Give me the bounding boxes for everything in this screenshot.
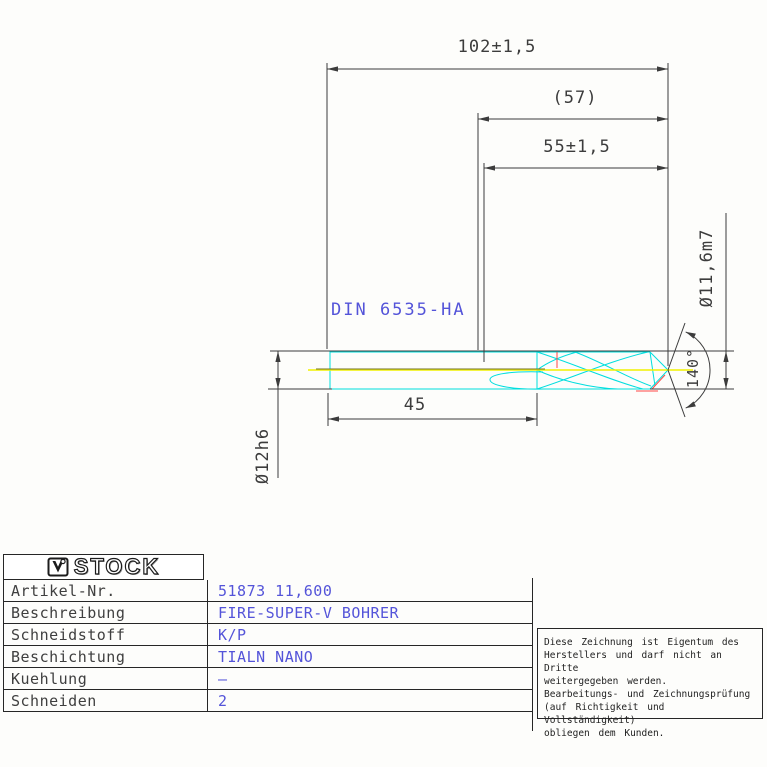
- note-line: (auf Richtigkeit und Vollständigkeit): [544, 701, 757, 727]
- note-line: Herstellers und darf nicht an Dritte: [544, 649, 757, 675]
- dim-cutting-diameter: Ø11,6m7: [698, 208, 716, 328]
- dim-shank-length: 45: [385, 396, 445, 414]
- dim-overall-length: 102±1,5: [447, 38, 547, 56]
- note-line: Bearbeitungs- und Zeichnungsprüfung: [544, 688, 757, 701]
- table-row: Schneiden 2: [4, 689, 532, 711]
- frame-divider-line: [532, 578, 533, 731]
- note-line: Diese Zeichnung ist Eigentum des: [544, 636, 757, 649]
- ownership-note: Diese Zeichnung ist Eigentum des Herstel…: [537, 628, 763, 719]
- shank-norm-label: DIN 6535-HA: [331, 301, 481, 319]
- centerline: [308, 369, 693, 370]
- dim-length-ref: (57): [535, 89, 615, 107]
- dim-shank-diameter: Ø12h6: [254, 396, 272, 516]
- stock-logo-mark-icon: [47, 557, 69, 577]
- row-value: –: [208, 670, 532, 688]
- dim-point-angle: 140°: [684, 338, 700, 398]
- dimension-arrows: [275, 66, 728, 421]
- manufacturer-logo: STOCK: [3, 554, 204, 580]
- row-value: FIRE-SUPER-V BOHRER: [208, 604, 532, 622]
- table-row: Kuehlung –: [4, 667, 532, 689]
- table-row: Schneidstoff K/P: [4, 623, 532, 645]
- table-row: Artikel-Nr. 51873 11,600: [4, 580, 532, 601]
- dim-flute-length: 55±1,5: [527, 138, 627, 156]
- note-line: obliegen dem Kunden.: [544, 727, 757, 740]
- table-row: Beschichtung TIALN NANO: [4, 645, 532, 667]
- row-label: Beschichtung: [4, 646, 208, 667]
- note-line: weitergegeben werden.: [544, 675, 757, 688]
- row-label: Schneidstoff: [4, 624, 208, 645]
- row-label: Kuehlung: [4, 668, 208, 689]
- table-row: Beschreibung FIRE-SUPER-V BOHRER: [4, 601, 532, 623]
- drawing-sheet: 102±1,5 (57) 55±1,5 45 Ø12h6 Ø11,6m7 140…: [0, 0, 767, 767]
- title-block-table: Artikel-Nr. 51873 11,600 Beschreibung FI…: [3, 580, 533, 712]
- title-block: STOCK Artikel-Nr. 51873 11,600 Beschreib…: [3, 554, 533, 712]
- row-value: K/P: [208, 626, 532, 644]
- logo-text: STOCK: [74, 554, 161, 580]
- row-label: Schneiden: [4, 690, 208, 711]
- row-label: Artikel-Nr.: [4, 580, 208, 601]
- row-label: Beschreibung: [4, 602, 208, 623]
- row-value: TIALN NANO: [208, 648, 532, 666]
- row-value: 51873 11,600: [208, 582, 532, 600]
- row-value: 2: [208, 692, 532, 710]
- dimension-lines: [268, 63, 734, 478]
